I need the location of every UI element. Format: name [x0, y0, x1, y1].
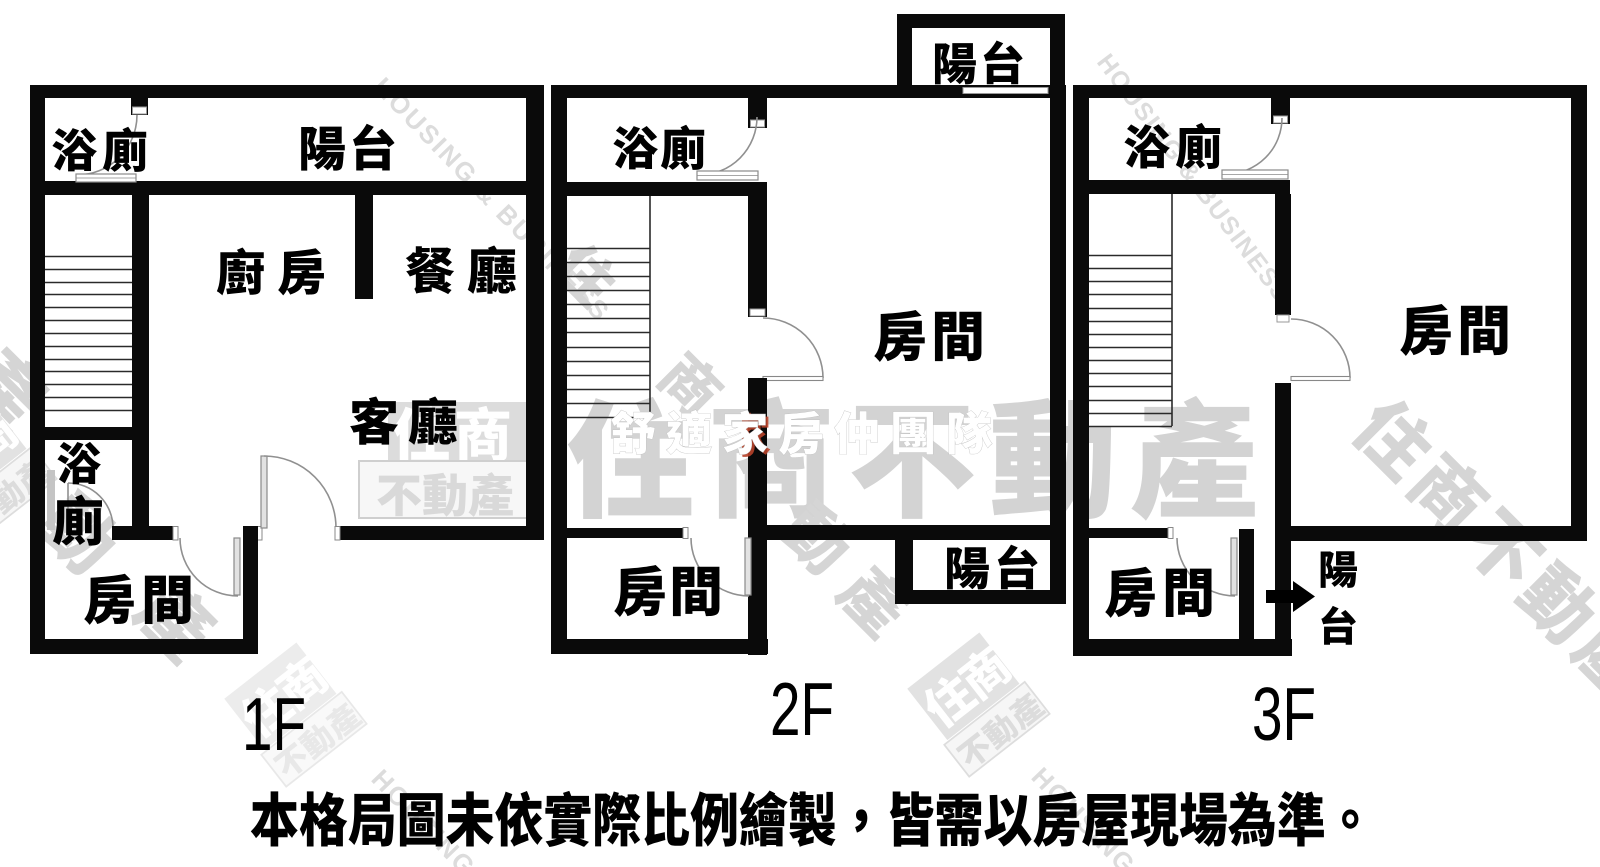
svg-text:1F: 1F — [242, 682, 306, 766]
svg-text:3F: 3F — [1252, 672, 1316, 756]
svg-text:2F: 2F — [770, 667, 834, 751]
